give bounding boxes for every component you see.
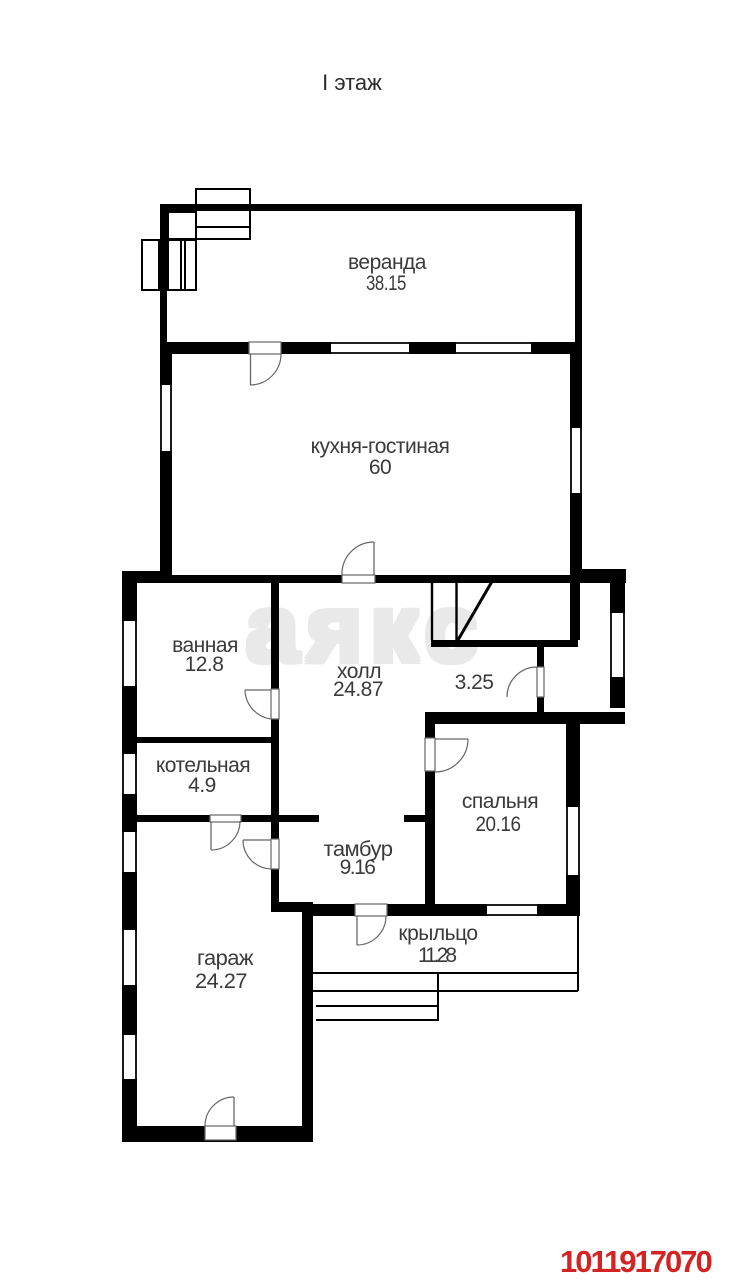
svg-text:60: 60	[369, 456, 391, 479]
svg-text:3.25: 3.25	[455, 671, 494, 694]
svg-text:веранда: веранда	[348, 251, 427, 274]
svg-text:крыльцо: крыльцо	[398, 922, 477, 945]
svg-text:11.28: 11.28	[418, 944, 456, 967]
svg-text:20.16: 20.16	[476, 813, 521, 836]
svg-text:4.9: 4.9	[188, 774, 216, 797]
svg-text:гараж: гараж	[197, 947, 253, 970]
svg-text:I этаж: I этаж	[322, 70, 382, 95]
svg-text:24.27: 24.27	[195, 970, 247, 993]
svg-text:12.8: 12.8	[185, 653, 224, 676]
svg-text:24.87: 24.87	[333, 678, 383, 701]
svg-text:1011917070: 1011917070	[560, 1244, 711, 1279]
svg-text:38.15: 38.15	[366, 272, 406, 295]
svg-text:спальня: спальня	[462, 790, 538, 813]
svg-text:9.16: 9.16	[340, 856, 376, 879]
svg-text:кухня-гостиная: кухня-гостиная	[311, 435, 450, 458]
